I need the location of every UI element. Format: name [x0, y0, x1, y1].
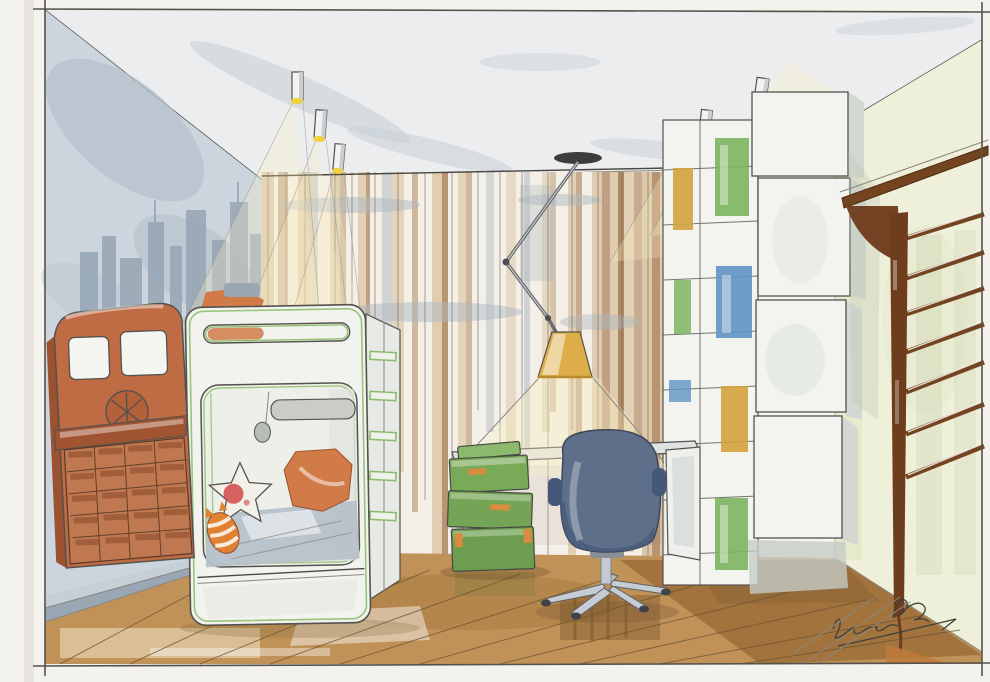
cube [752, 92, 848, 176]
arm-joint [503, 259, 510, 266]
caster [639, 606, 649, 613]
box-clasp [468, 468, 486, 475]
top-bunk-blanket [224, 283, 260, 297]
arm-joint [545, 315, 551, 321]
truck-dresser [45, 303, 194, 569]
panel-yellow [673, 168, 693, 230]
cube [754, 416, 842, 538]
chair-shadow [535, 601, 679, 623]
watercolor-room-sketch [0, 0, 990, 682]
wood-highlight [893, 260, 897, 290]
caster [571, 613, 581, 620]
armrest [652, 468, 666, 496]
truck-window [68, 336, 109, 379]
scan-shadow [24, 0, 34, 682]
box [447, 491, 532, 530]
cube-wash [765, 324, 825, 396]
drawer-grid [64, 438, 192, 564]
truck-window [120, 330, 168, 376]
caster [661, 589, 671, 596]
caster [541, 600, 551, 607]
pillow-through-slot [208, 327, 264, 340]
box [451, 527, 534, 572]
hanging-toy [254, 422, 270, 442]
panel-blue [669, 380, 691, 402]
armrest [548, 478, 562, 506]
sketch-page [0, 0, 990, 682]
panel-highlight [720, 145, 728, 205]
bed-side-ladder [366, 314, 400, 602]
box-clasp [490, 504, 510, 511]
box-corner [454, 533, 462, 547]
spotlight-can [291, 72, 303, 104]
box [449, 455, 529, 493]
bunk-bed [180, 283, 420, 638]
inner-slot [271, 399, 355, 420]
shelf-base-shadow [748, 540, 848, 594]
cube-side [842, 416, 858, 545]
cube-wash [772, 196, 828, 284]
panel-yellow [721, 386, 748, 452]
ceiling-wash [480, 53, 600, 71]
panel-highlight [720, 505, 728, 563]
wood-highlight [895, 380, 899, 424]
chair-stem [601, 554, 611, 584]
panel-green [674, 280, 691, 334]
panel-green [715, 498, 748, 570]
desk-side-shade [672, 456, 694, 548]
bed-front [185, 304, 371, 625]
box-corner [523, 529, 531, 543]
panel-blue [716, 266, 752, 338]
panel-highlight [722, 275, 731, 333]
